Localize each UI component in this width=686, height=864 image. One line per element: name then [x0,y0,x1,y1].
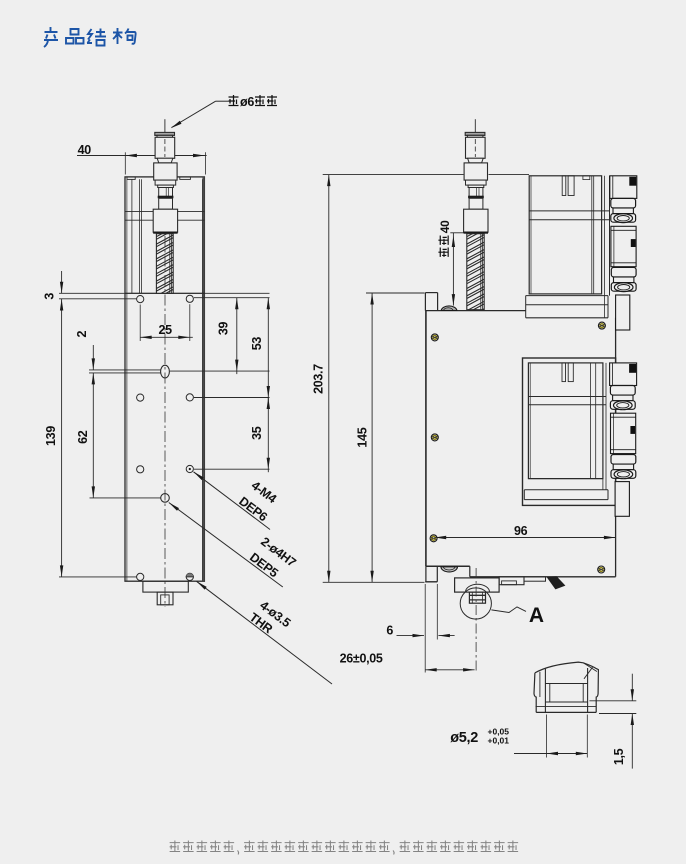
svg-text:3: 3 [43,293,57,300]
svg-text:+0,01: +0,01 [488,736,510,746]
svg-text:ø6: ø6 [240,95,254,109]
svg-text:53: 53 [250,337,264,351]
svg-text:203.7: 203.7 [311,364,325,394]
svg-text:39: 39 [217,322,231,336]
svg-text:145: 145 [356,427,370,447]
svg-text:2: 2 [75,331,89,338]
svg-text:40: 40 [438,220,452,233]
svg-text:1,5: 1,5 [612,748,626,765]
svg-text:ø5,2: ø5,2 [450,730,478,746]
svg-text:6: 6 [386,624,393,638]
svg-text:35: 35 [250,426,264,440]
svg-text:25: 25 [159,323,173,337]
svg-text:96: 96 [514,524,528,538]
svg-text:A: A [529,604,544,627]
svg-text:62: 62 [76,430,90,444]
svg-text:26±0,05: 26±0,05 [340,652,383,666]
svg-text:139: 139 [44,426,58,446]
